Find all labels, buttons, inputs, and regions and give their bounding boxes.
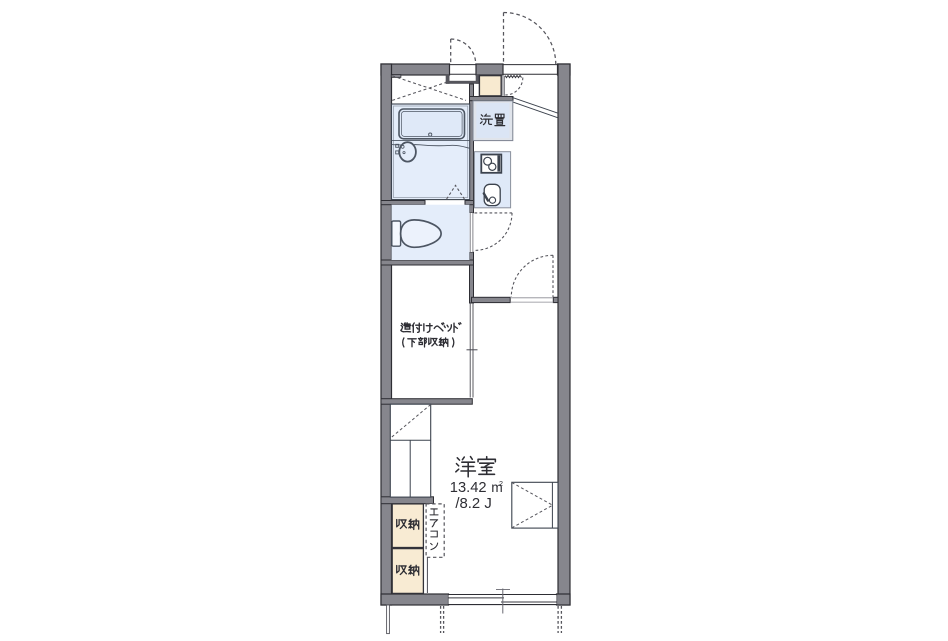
svg-text:2: 2 bbox=[499, 479, 503, 488]
svg-text:/8.2 J: /8.2 J bbox=[455, 495, 491, 512]
svg-text:13.42: 13.42 bbox=[450, 479, 487, 496]
